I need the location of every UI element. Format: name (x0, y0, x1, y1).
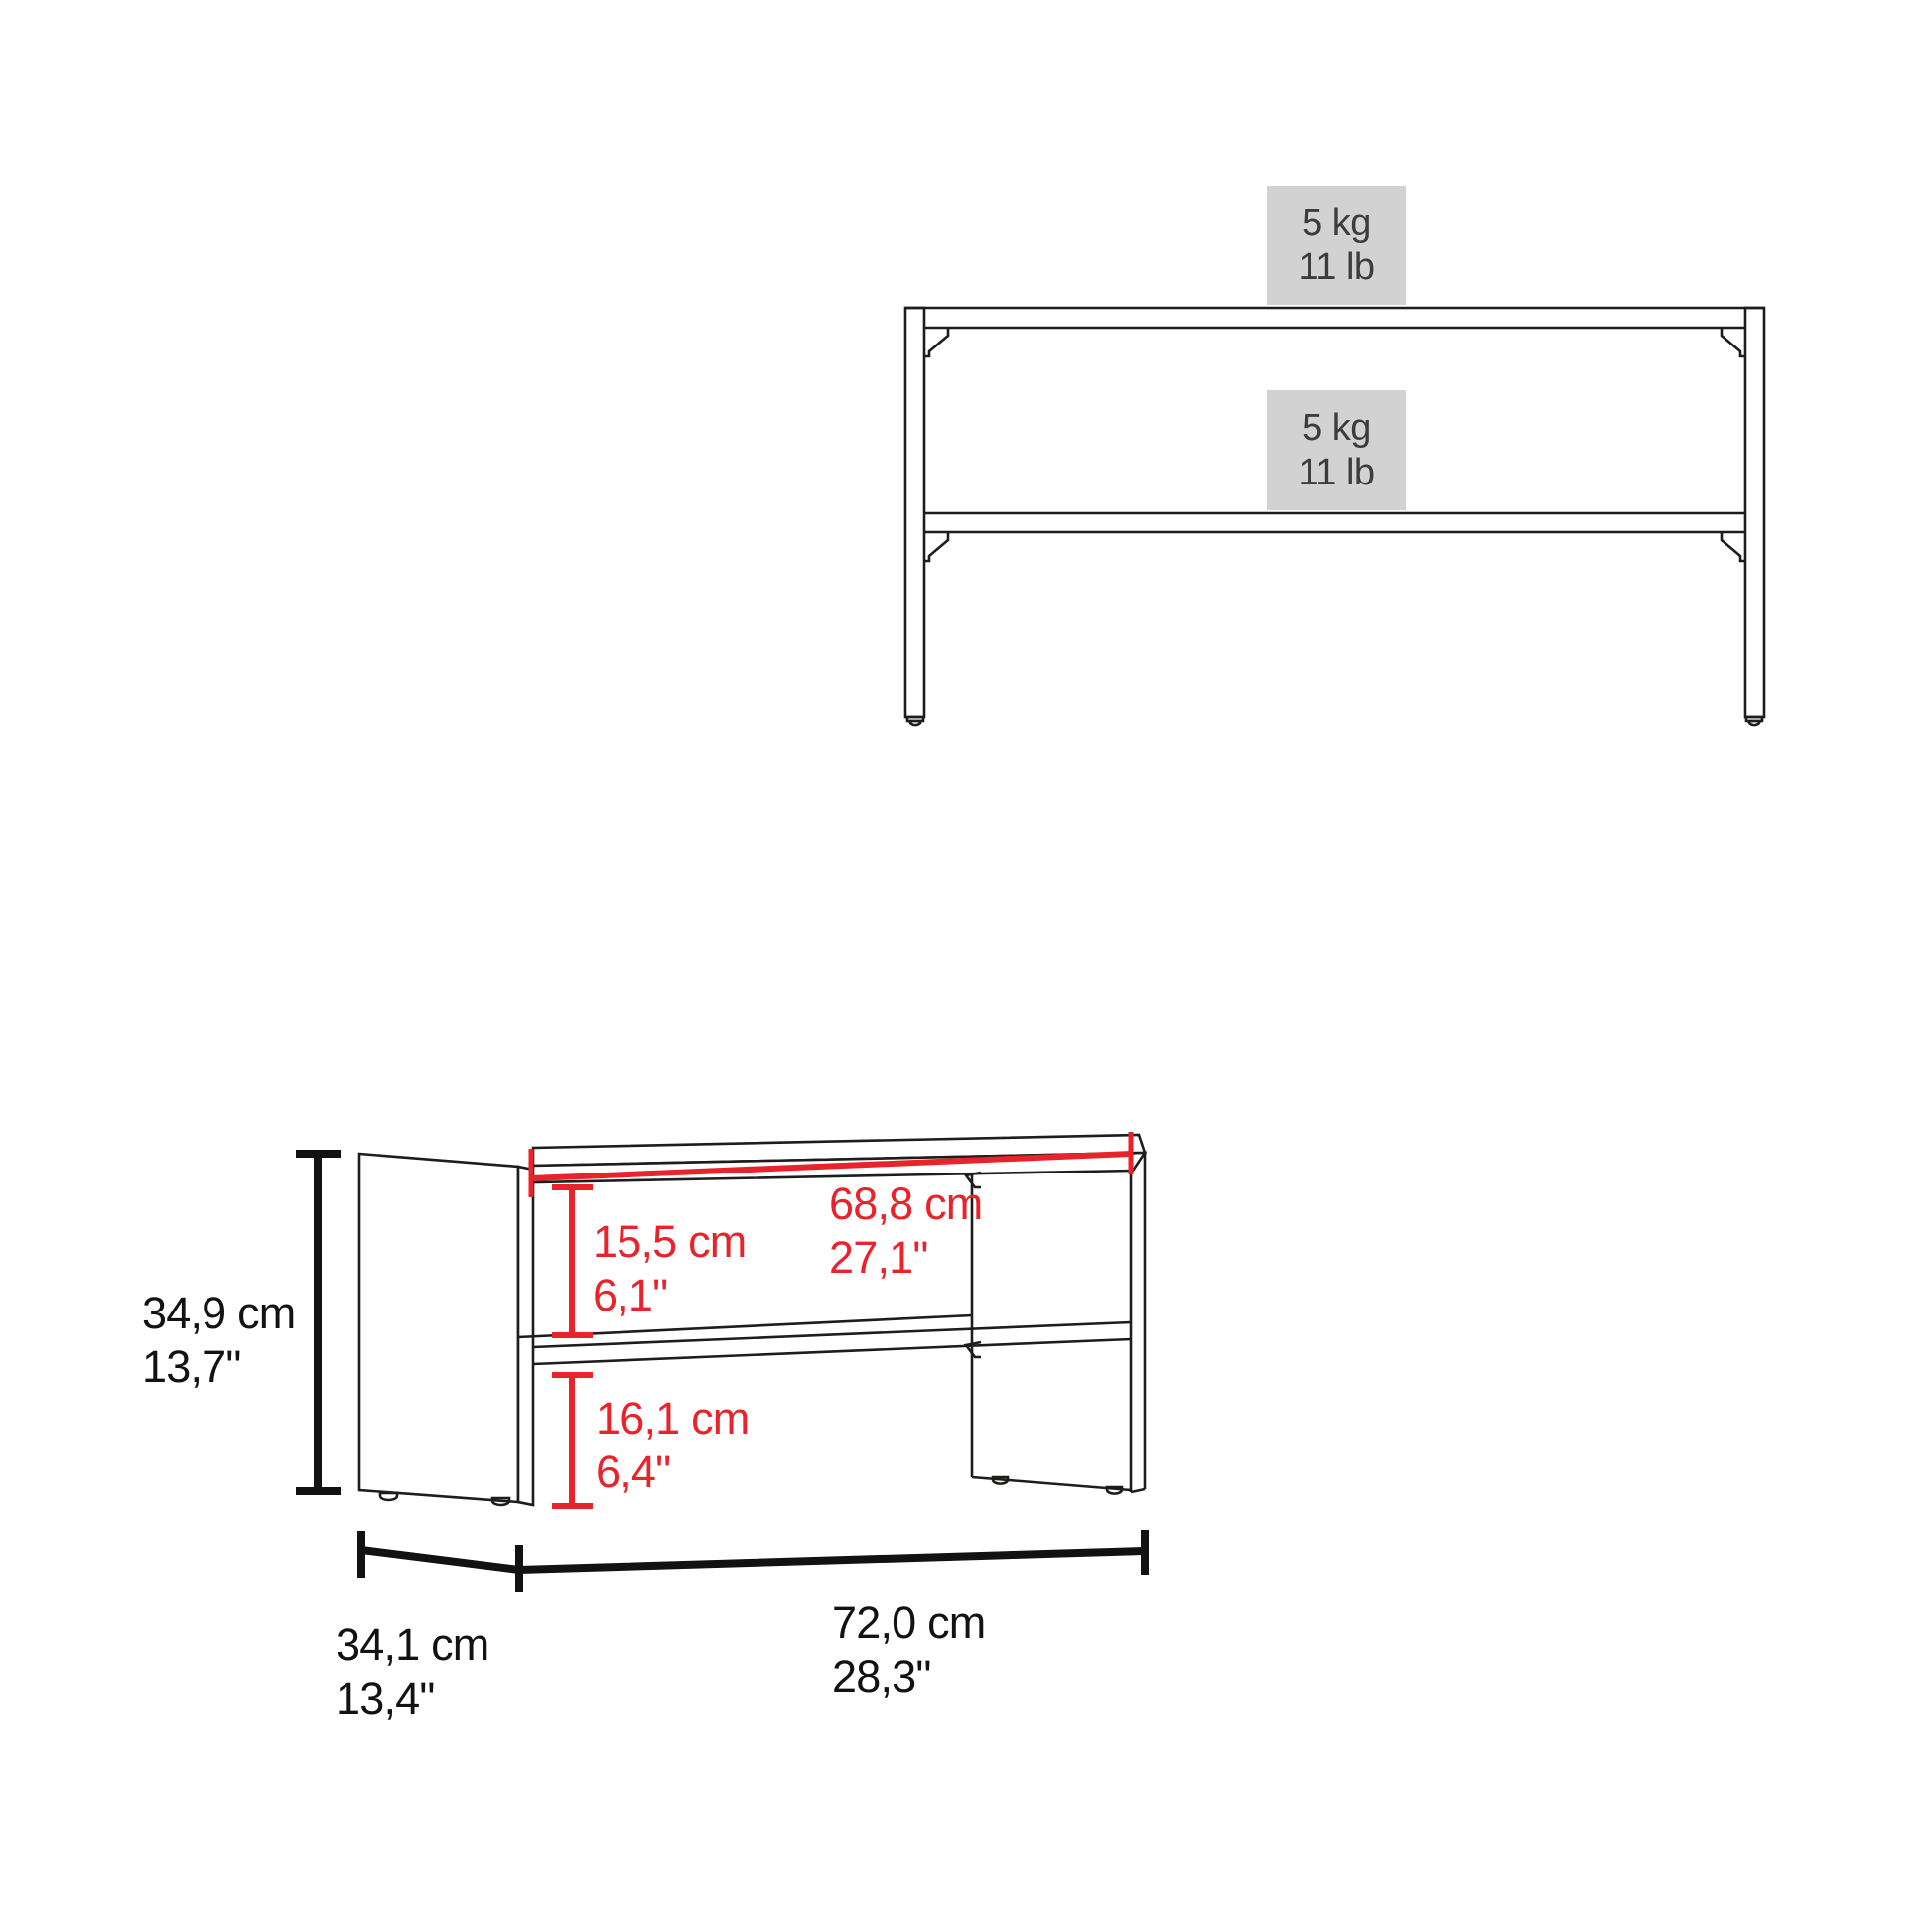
dim-label-height: 34,9 cm 13,7" (142, 1287, 295, 1394)
load-lb-label: 11 lb (1298, 451, 1374, 494)
front-shelf (924, 513, 1745, 532)
dim-line-upper-clearance (552, 1187, 593, 1335)
load-capacity-top-surface: 5 kg 11 lb (1267, 186, 1406, 305)
side-panel-left (359, 1154, 518, 1502)
front-view-drawing (905, 308, 1764, 725)
dim-height-cm: 34,9 cm (142, 1287, 295, 1340)
dim-label-upper-clearance: 15,5 cm 6,1" (593, 1215, 746, 1322)
front-foot-right (1746, 717, 1762, 725)
dim-upper-clearance-inch: 6,1" (593, 1269, 746, 1322)
dim-label-width: 72,0 cm 28,3" (832, 1596, 985, 1704)
bracket-shelf-right (1722, 533, 1745, 561)
dimension-view-drawing (296, 1132, 1145, 1592)
bracket-shelf-left (924, 533, 948, 561)
dim-depth-cm: 34,1 cm (336, 1618, 488, 1672)
dim-upper-clearance-cm: 15,5 cm (593, 1215, 746, 1269)
front-foot-left (907, 717, 923, 725)
dim-lower-clearance-cm: 16,1 cm (596, 1392, 749, 1446)
dim-line-height (296, 1154, 341, 1491)
dim-depth-inch: 13,4" (336, 1672, 488, 1725)
dim-label-inner-width: 68,8 cm 27,1" (829, 1177, 982, 1285)
furniture-dimension-sheet: 5 kg 11 lb 5 kg 11 lb 34,9 cm 13,7" 68,8… (0, 0, 1932, 1932)
dim-inner-width-cm: 68,8 cm (829, 1177, 982, 1231)
dim-lower-clearance-inch: 6,4" (596, 1446, 749, 1499)
front-leg-left (905, 308, 924, 717)
front-leg-right (1745, 308, 1764, 717)
dim-inner-width-inch: 27,1" (829, 1231, 982, 1285)
load-lb-label: 11 lb (1298, 245, 1374, 289)
dim-line-depth-width (361, 1530, 1145, 1592)
bracket-top-left (924, 329, 948, 356)
foot-front-left (380, 1493, 397, 1500)
load-kg-label: 5 kg (1302, 202, 1371, 245)
load-kg-label: 5 kg (1302, 406, 1371, 450)
middle-shelf (518, 1315, 1131, 1364)
dim-width-inch: 28,3" (832, 1650, 985, 1704)
front-tabletop (905, 308, 1764, 328)
dim-label-lower-clearance: 16,1 cm 6,4" (596, 1392, 749, 1499)
bracket-top-right (1722, 329, 1745, 356)
load-capacity-shelf: 5 kg 11 lb (1267, 390, 1406, 510)
dim-width-cm: 72,0 cm (832, 1596, 985, 1650)
dim-height-inch: 13,7" (142, 1340, 295, 1394)
dim-label-depth: 34,1 cm 13,4" (336, 1618, 488, 1725)
dim-line-lower-clearance (552, 1375, 593, 1506)
